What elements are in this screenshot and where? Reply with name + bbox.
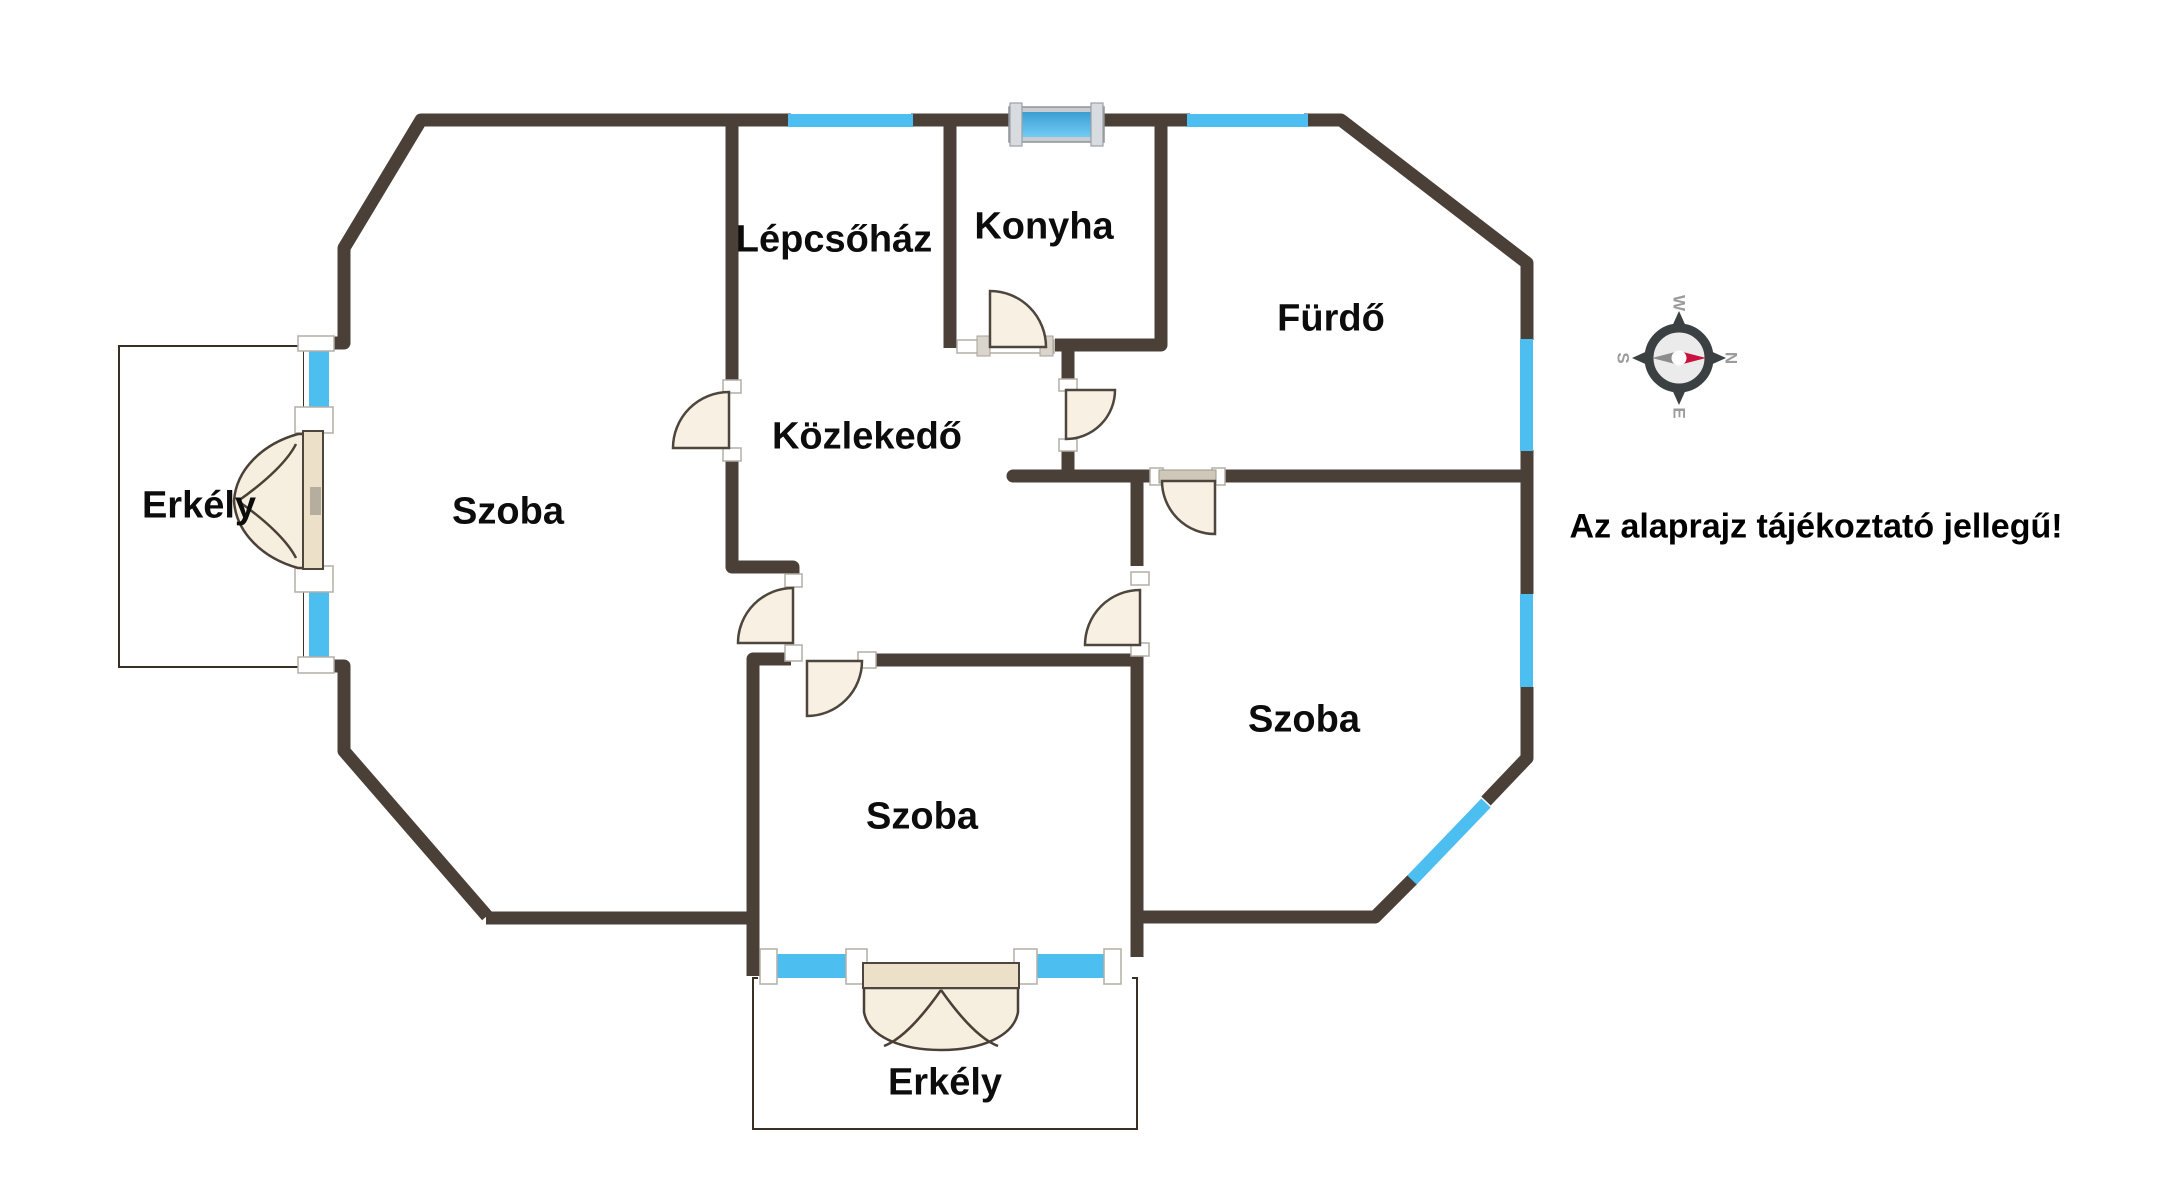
- window-lepcsohaz-top: [788, 114, 913, 127]
- room-label-kozlekedo: Közlekedő: [772, 416, 962, 459]
- window-szoba-right-east: [1520, 594, 1533, 687]
- room-label-szoba-bottom: Szoba: [866, 796, 978, 839]
- window-konyha-bracket-left: [1010, 103, 1022, 146]
- wall-szoba-bottom-west: [753, 659, 791, 976]
- wall-bottom-right: [1140, 879, 1413, 917]
- compass-label-e: E: [1670, 407, 1689, 418]
- wall-kozlekedo-west-jog: [732, 455, 793, 576]
- floor-plan: N E S W Lépcsőház Konyha Fürdő Közlekedő…: [0, 0, 2180, 1200]
- sill-balcony-bottom-1: [760, 949, 777, 984]
- sill-balcony-left-1: [298, 336, 334, 351]
- door-konyha: [990, 291, 1046, 347]
- sill-balcony-bottom-4: [1104, 949, 1121, 984]
- window-furdo-east: [1520, 339, 1533, 451]
- room-label-erkely-bottom: Erkély: [888, 1062, 1002, 1105]
- door-szoba-left-south: [738, 588, 793, 643]
- window-konyha-framed: [1009, 103, 1104, 146]
- disclaimer-text: Az alaprajz tájékoztató jellegű!: [1569, 508, 2062, 547]
- door-szoba-bottom-entry: [807, 661, 862, 716]
- door-furdo-entry: [1066, 390, 1115, 439]
- window-szoba-bottom-left: [775, 954, 848, 978]
- sill-balcony-left-2: [295, 407, 333, 433]
- compass-label-w: W: [1670, 295, 1689, 312]
- room-label-erkely-left: Erkély: [142, 485, 256, 528]
- door-furdo-szoba: [1162, 481, 1215, 534]
- plan-drawing: N E S W: [0, 0, 2180, 1200]
- jamb-szoba-right-top: [1131, 572, 1149, 585]
- french-door-bottom-panel: [863, 963, 1019, 988]
- wall-top-left-run: [310, 120, 791, 343]
- wall-left-lower-diagonal: [310, 666, 487, 916]
- window-konyha-bracket-right: [1091, 103, 1103, 146]
- door-szoba-left-east: [673, 392, 729, 448]
- window-furdo-top: [1187, 114, 1308, 127]
- room-label-lepcsohaz: Lépcsőház: [736, 219, 932, 262]
- compass-label-n: N: [1722, 352, 1741, 364]
- sill-balcony-left-4: [298, 657, 334, 673]
- window-szoba-left-balcony-bottom: [309, 589, 329, 664]
- jamb-konyha-left: [977, 336, 990, 356]
- jamb-szoba-left-south-top: [785, 574, 802, 587]
- window-konyha-glass: [1021, 112, 1092, 137]
- compass-label-s: S: [1614, 352, 1633, 363]
- jamb-furdo-entry-bottom: [1059, 439, 1077, 451]
- room-label-szoba-right: Szoba: [1248, 699, 1360, 742]
- french-door-bottom-leaves: [864, 988, 1018, 1050]
- compass-rose: N E S W: [1614, 295, 1741, 419]
- room-label-furdo: Fürdő: [1277, 298, 1385, 341]
- compass-hub: [1672, 351, 1687, 366]
- french-door-balcony-bottom: [863, 963, 1019, 1050]
- door-szoba-right: [1085, 590, 1140, 645]
- jamb-szoba-left-east-bottom: [723, 448, 741, 461]
- jamb-szoba-left-south-bottom: [785, 645, 802, 661]
- room-label-konyha: Konyha: [974, 206, 1113, 249]
- window-szoba-bottom-right: [1036, 954, 1108, 978]
- wall-right-lower-diagonal: [1486, 687, 1527, 801]
- french-door-left-handle: [310, 487, 321, 515]
- room-label-szoba-left: Szoba: [452, 491, 564, 534]
- window-szoba-right-diagonal: [1412, 803, 1486, 880]
